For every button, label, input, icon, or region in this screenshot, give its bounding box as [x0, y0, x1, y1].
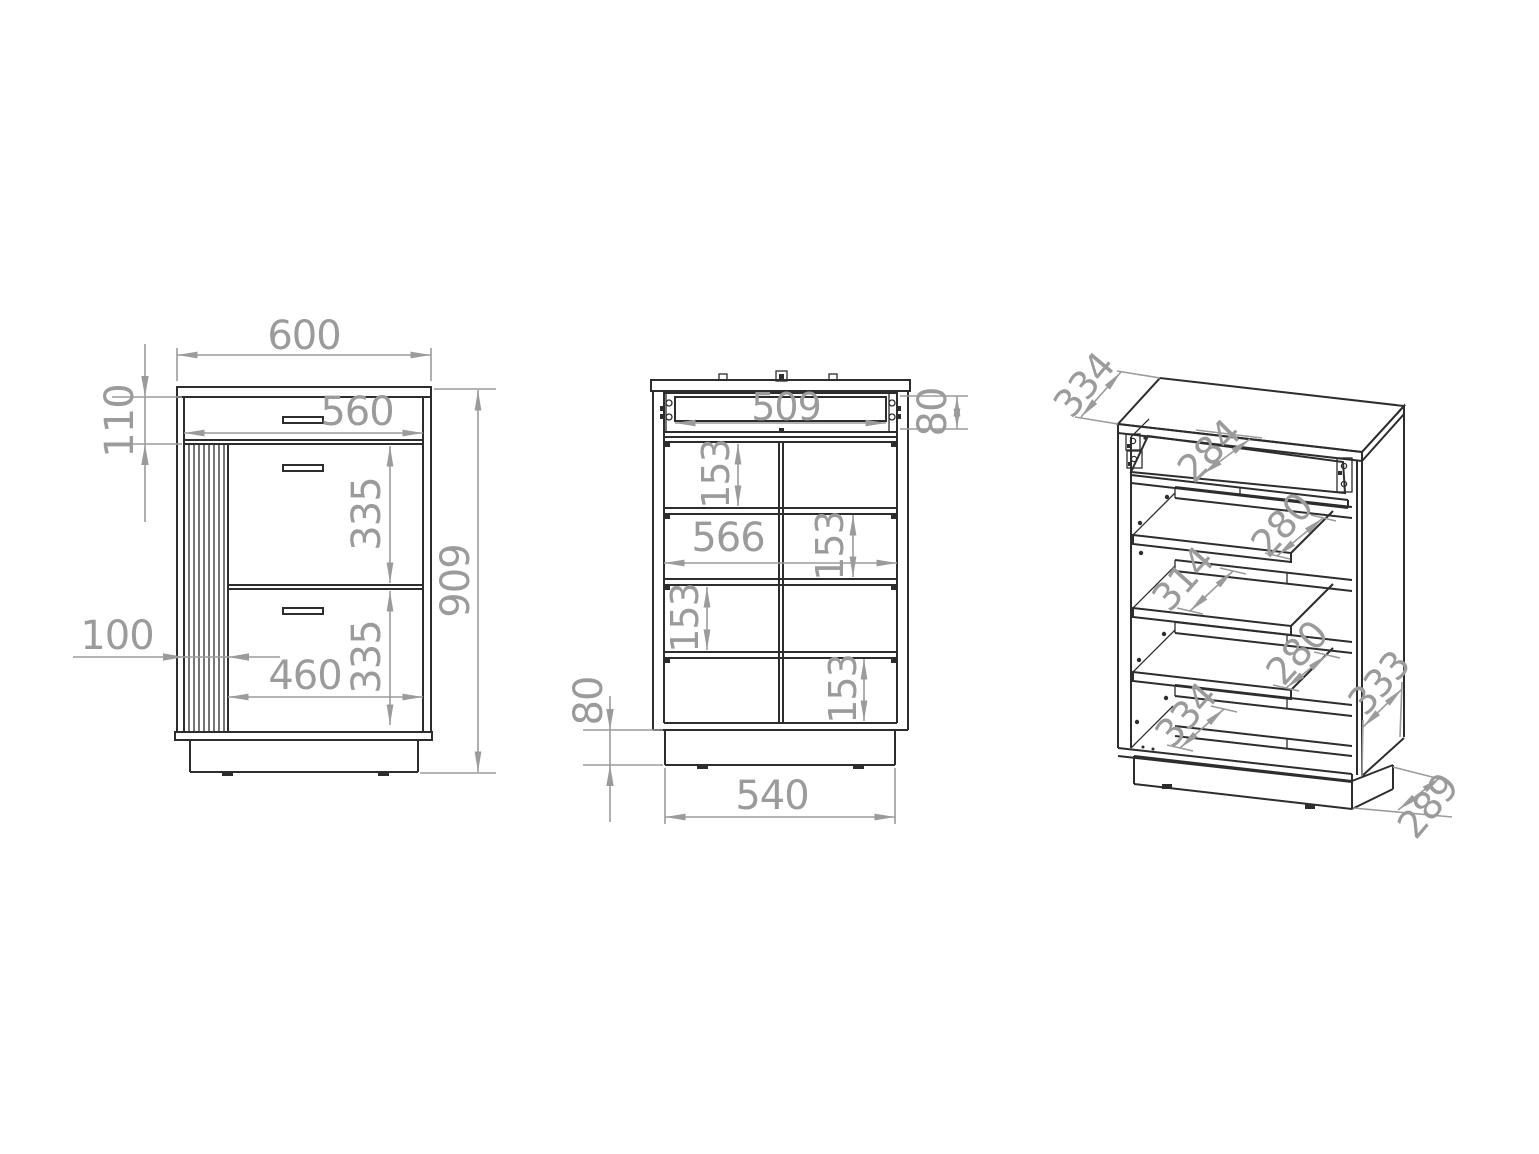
internal-plinth	[665, 730, 895, 769]
furniture-dimension-drawing: 600 110 560 335 335 909	[0, 0, 1539, 1154]
dim-iso-middle-shelf-depth: 314	[1143, 538, 1222, 619]
dim-front-door-width: 460	[268, 653, 341, 699]
front-dimensions: 600 110 560 335 335 909	[73, 313, 496, 773]
dim-iso-lower-shelf-depth: 280	[1257, 612, 1336, 693]
dim-internal-section-2: 153	[808, 511, 852, 581]
dim-internal-section-1: 153	[694, 439, 738, 509]
dim-iso-top-depth: 334	[1045, 344, 1123, 426]
front-view: 600 110 560 335 335 909	[73, 313, 496, 776]
iso-right-foot	[1305, 804, 1315, 809]
isometric-view: 334 284 280 314 280 334	[1045, 344, 1467, 847]
dim-front-upper-door-height: 335	[344, 477, 390, 550]
dim-internal-inner-width: 566	[691, 515, 764, 561]
technical-drawing-page: 600 110 560 335 335 909	[0, 0, 1539, 1154]
front-slat-panel-lines	[189, 444, 224, 732]
dim-internal-section-4: 153	[821, 654, 865, 724]
internal-right-foot	[853, 765, 864, 769]
iso-top-board	[1118, 378, 1404, 461]
dim-front-total-height: 909	[433, 544, 479, 617]
dim-internal-drawer-height: 80	[910, 388, 956, 437]
dim-iso-drawer-depth: 284	[1169, 411, 1249, 491]
front-plinth	[190, 740, 418, 776]
dim-internal-drawer-width: 509	[751, 385, 821, 429]
dim-iso-side-depth: 333	[1339, 642, 1418, 723]
internal-left-foot	[697, 765, 708, 769]
iso-left-foot	[1162, 784, 1172, 789]
front-bottom-board	[175, 732, 432, 740]
front-upper-door-handle	[283, 465, 323, 471]
dim-iso-plinth-depth: 289	[1389, 765, 1467, 847]
dim-front-lower-door-height: 335	[344, 620, 390, 693]
front-right-foot	[378, 772, 389, 776]
dim-front-top-height: 110	[97, 384, 143, 457]
dim-front-width: 600	[267, 313, 340, 359]
dim-iso-bottom-depth: 334	[1146, 674, 1225, 755]
dim-front-slat-width: 100	[80, 613, 153, 659]
front-drawer-handle	[283, 417, 323, 423]
front-lower-door-handle	[283, 608, 323, 614]
dim-internal-plinth-width: 540	[735, 773, 808, 819]
dim-front-drawer-width: 560	[320, 389, 393, 435]
dim-internal-section-3: 153	[663, 583, 707, 653]
front-left-foot	[222, 772, 233, 776]
internal-view: 509 80 153 566 153 153 153	[566, 371, 968, 824]
dim-internal-plinth-height: 80	[566, 677, 612, 726]
